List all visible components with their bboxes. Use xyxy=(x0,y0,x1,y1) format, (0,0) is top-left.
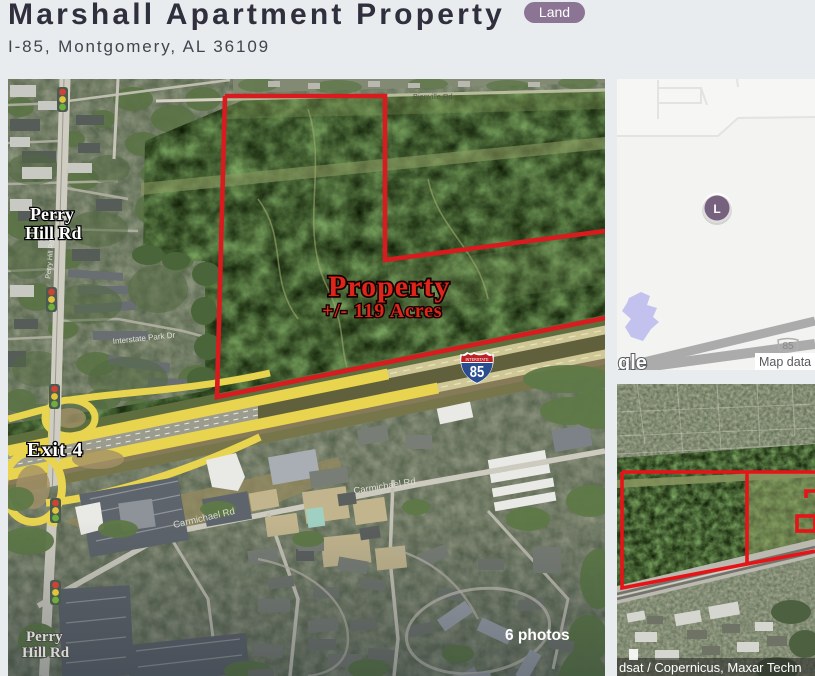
svg-text:Property: Property xyxy=(328,270,450,303)
svg-text:gle: gle xyxy=(618,352,647,370)
svg-text:Perry: Perry xyxy=(26,629,63,645)
svg-text:Map data: Map data xyxy=(759,355,811,369)
svg-text:85: 85 xyxy=(470,364,485,381)
svg-text:Perry: Perry xyxy=(30,204,74,224)
svg-text:85: 85 xyxy=(782,341,794,352)
svg-text:INTERSTATE: INTERSTATE xyxy=(465,357,488,362)
svg-text:Hill Rd: Hill Rd xyxy=(22,645,70,661)
svg-text:+/- 119 Acres: +/- 119 Acres xyxy=(322,300,442,322)
svg-text:Exit 4: Exit 4 xyxy=(27,439,84,461)
svg-text:dsat / Copernicus, Maxar Techn: dsat / Copernicus, Maxar Techn xyxy=(619,660,802,675)
svg-text:L: L xyxy=(713,202,720,216)
svg-text:6 photos: 6 photos xyxy=(505,627,570,644)
